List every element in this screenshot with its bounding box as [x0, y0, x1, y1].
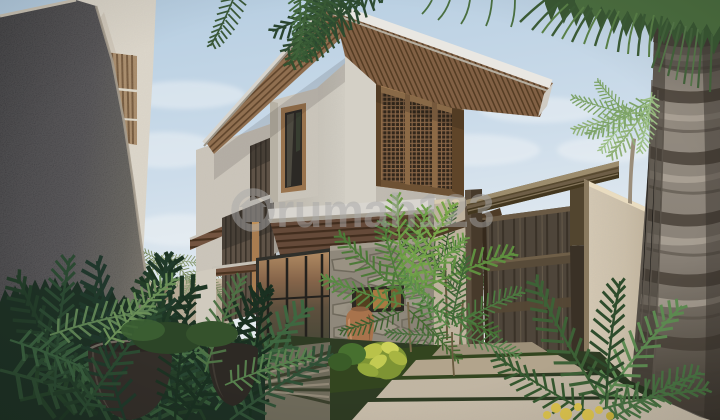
svg-text:rumah123: rumah123: [276, 184, 494, 237]
